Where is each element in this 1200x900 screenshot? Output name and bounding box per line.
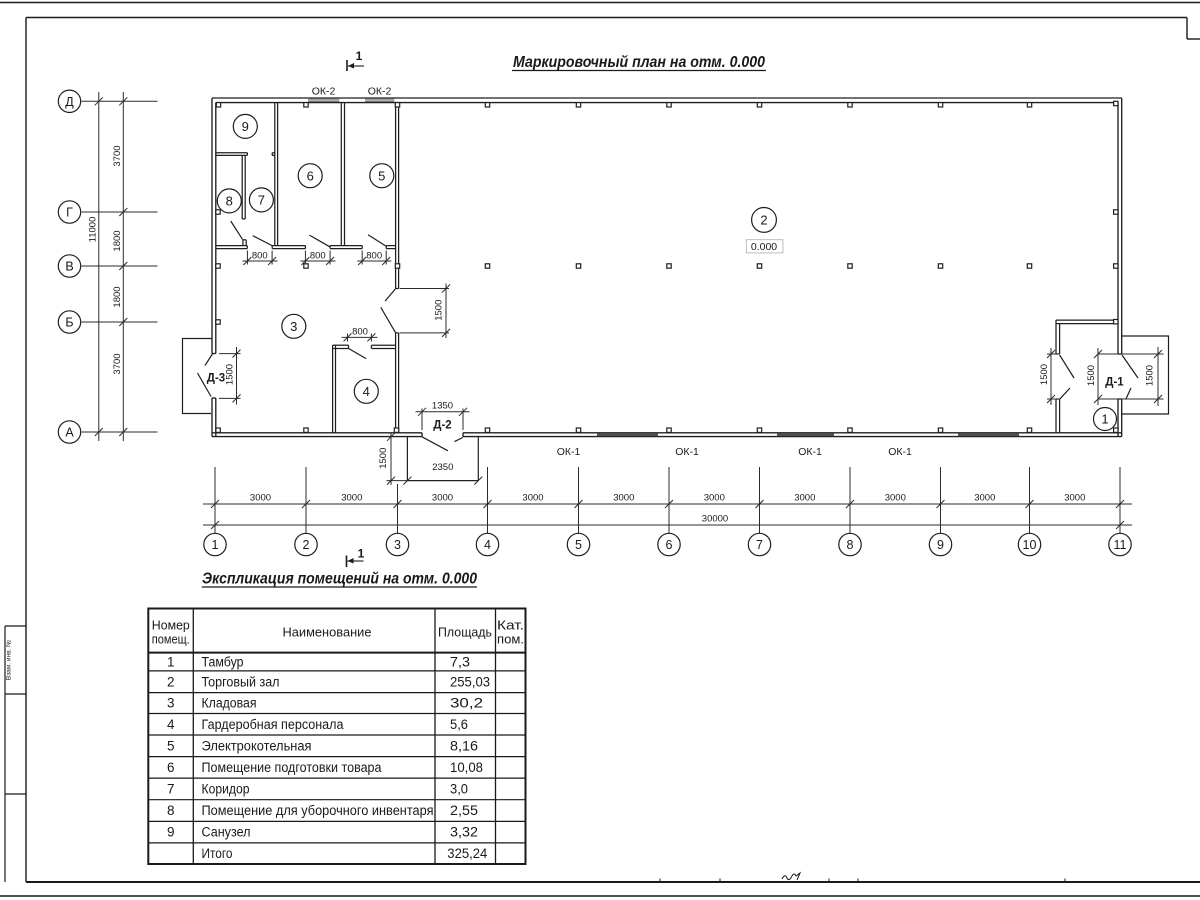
svg-text:Коридор: Коридор xyxy=(202,782,250,797)
svg-text:Экспликация помещений на отм.: Экспликация помещений на отм. 0.000 xyxy=(202,571,477,588)
svg-text:6: 6 xyxy=(666,538,673,552)
svg-text:7: 7 xyxy=(167,782,175,797)
svg-text:11: 11 xyxy=(1114,538,1127,552)
svg-text:1: 1 xyxy=(212,538,219,552)
svg-text:325,24: 325,24 xyxy=(447,846,487,861)
svg-text:5: 5 xyxy=(378,168,385,183)
svg-text:8: 8 xyxy=(847,538,854,552)
svg-text:7: 7 xyxy=(756,538,763,552)
svg-text:А: А xyxy=(65,426,74,440)
svg-text:Площадь: Площадь xyxy=(438,625,492,640)
svg-text:Кат.: Кат. xyxy=(497,618,524,633)
svg-text:6: 6 xyxy=(307,168,314,183)
svg-text:800: 800 xyxy=(310,251,326,262)
svg-text:9: 9 xyxy=(937,538,944,552)
svg-text:Помещение подготовки товара: Помещение подготовки товара xyxy=(202,760,382,775)
svg-text:10: 10 xyxy=(1023,538,1037,552)
svg-text:Д-1: Д-1 xyxy=(1105,377,1124,389)
svg-text:3000: 3000 xyxy=(250,493,271,504)
svg-text:10,08: 10,08 xyxy=(450,760,483,775)
svg-text:0.000: 0.000 xyxy=(751,241,777,253)
svg-text:помещ.: помещ. xyxy=(152,632,190,647)
svg-text:Маркировочный план на отм. 0.0: Маркировочный план на отм. 0.000 xyxy=(513,54,765,71)
svg-text:Взам. инв. №: Взам. инв. № xyxy=(6,640,13,680)
svg-text:Номер: Номер xyxy=(152,618,190,633)
svg-text:ОК-1: ОК-1 xyxy=(798,446,822,458)
svg-text:3000: 3000 xyxy=(885,493,906,504)
svg-text:1: 1 xyxy=(1101,412,1108,427)
svg-text:8: 8 xyxy=(167,803,175,818)
svg-text:3000: 3000 xyxy=(341,493,362,504)
svg-text:2: 2 xyxy=(167,674,175,689)
svg-text:3: 3 xyxy=(394,538,401,552)
svg-text:3,32: 3,32 xyxy=(450,825,478,840)
svg-text:5: 5 xyxy=(167,739,175,754)
svg-text:Гардеробная персонала: Гардеробная персонала xyxy=(202,717,344,732)
svg-text:2: 2 xyxy=(303,538,310,552)
svg-text:800: 800 xyxy=(252,251,268,262)
svg-text:2,55: 2,55 xyxy=(450,803,478,818)
svg-text:ОК-1: ОК-1 xyxy=(675,446,699,458)
svg-text:4: 4 xyxy=(363,384,370,399)
svg-text:1800: 1800 xyxy=(112,286,123,307)
svg-text:1500: 1500 xyxy=(1145,365,1156,386)
svg-text:3000: 3000 xyxy=(432,493,453,504)
svg-text:3000: 3000 xyxy=(613,493,634,504)
svg-text:255,03: 255,03 xyxy=(450,674,490,689)
svg-text:пом.: пом. xyxy=(497,632,524,647)
svg-text:Д-2: Д-2 xyxy=(433,420,451,432)
svg-text:Помещение для уборочного инвен: Помещение для уборочного инвентаря xyxy=(202,803,434,818)
svg-text:30,2: 30,2 xyxy=(450,696,483,711)
svg-text:Электрокотельная: Электрокотельная xyxy=(202,739,312,754)
svg-text:3,0: 3,0 xyxy=(450,782,468,797)
svg-text:1500: 1500 xyxy=(224,364,235,385)
svg-text:1: 1 xyxy=(167,654,175,669)
svg-text:3000: 3000 xyxy=(974,493,995,504)
svg-text:3000: 3000 xyxy=(704,493,725,504)
svg-text:ОК-2: ОК-2 xyxy=(368,86,392,98)
svg-text:Торговый зал: Торговый зал xyxy=(202,674,280,689)
svg-text:4: 4 xyxy=(484,538,491,552)
svg-text:3700: 3700 xyxy=(112,353,123,374)
svg-text:ОК-1: ОК-1 xyxy=(557,446,581,458)
svg-text:1800: 1800 xyxy=(112,230,123,251)
svg-text:Кладовая: Кладовая xyxy=(202,696,257,711)
svg-text:Санузел: Санузел xyxy=(202,825,251,840)
svg-text:800: 800 xyxy=(366,251,382,262)
svg-text:Д: Д xyxy=(65,95,74,109)
svg-text:7: 7 xyxy=(258,193,265,208)
svg-text:1350: 1350 xyxy=(432,401,453,412)
svg-text:5: 5 xyxy=(575,538,582,552)
svg-text:5,6: 5,6 xyxy=(450,717,468,732)
svg-text:6: 6 xyxy=(167,760,175,775)
svg-text:2: 2 xyxy=(760,213,767,228)
svg-text:30000: 30000 xyxy=(702,514,728,525)
svg-text:9: 9 xyxy=(242,119,249,134)
svg-text:1500: 1500 xyxy=(1086,365,1097,386)
svg-text:Б: Б xyxy=(65,316,73,330)
svg-text:3: 3 xyxy=(167,696,175,711)
svg-text:1: 1 xyxy=(358,547,365,561)
svg-text:1500: 1500 xyxy=(1039,364,1050,385)
svg-text:1500: 1500 xyxy=(378,448,389,469)
svg-text:Д-3: Д-3 xyxy=(207,373,225,385)
svg-text:7,3: 7,3 xyxy=(450,654,470,669)
svg-text:ОК-1: ОК-1 xyxy=(888,446,912,458)
svg-text:11000: 11000 xyxy=(87,217,98,243)
svg-text:1: 1 xyxy=(356,49,363,63)
svg-text:Итого: Итого xyxy=(202,846,233,861)
svg-text:3: 3 xyxy=(290,319,297,334)
svg-text:3000: 3000 xyxy=(794,493,815,504)
svg-text:1500: 1500 xyxy=(434,300,445,321)
svg-text:3700: 3700 xyxy=(112,145,123,166)
svg-text:3000: 3000 xyxy=(1064,493,1085,504)
svg-text:3000: 3000 xyxy=(522,493,543,504)
svg-text:800: 800 xyxy=(352,327,368,338)
svg-text:8: 8 xyxy=(226,194,233,209)
svg-text:В: В xyxy=(65,260,73,274)
svg-text:ОК-2: ОК-2 xyxy=(312,86,336,98)
svg-text:4: 4 xyxy=(167,717,175,732)
svg-text:Наименование: Наименование xyxy=(283,625,372,640)
svg-text:2350: 2350 xyxy=(432,462,453,473)
svg-text:Г: Г xyxy=(66,206,73,220)
svg-text:Тамбур: Тамбур xyxy=(202,654,244,669)
svg-text:9: 9 xyxy=(167,825,175,840)
svg-text:8,16: 8,16 xyxy=(450,739,478,754)
